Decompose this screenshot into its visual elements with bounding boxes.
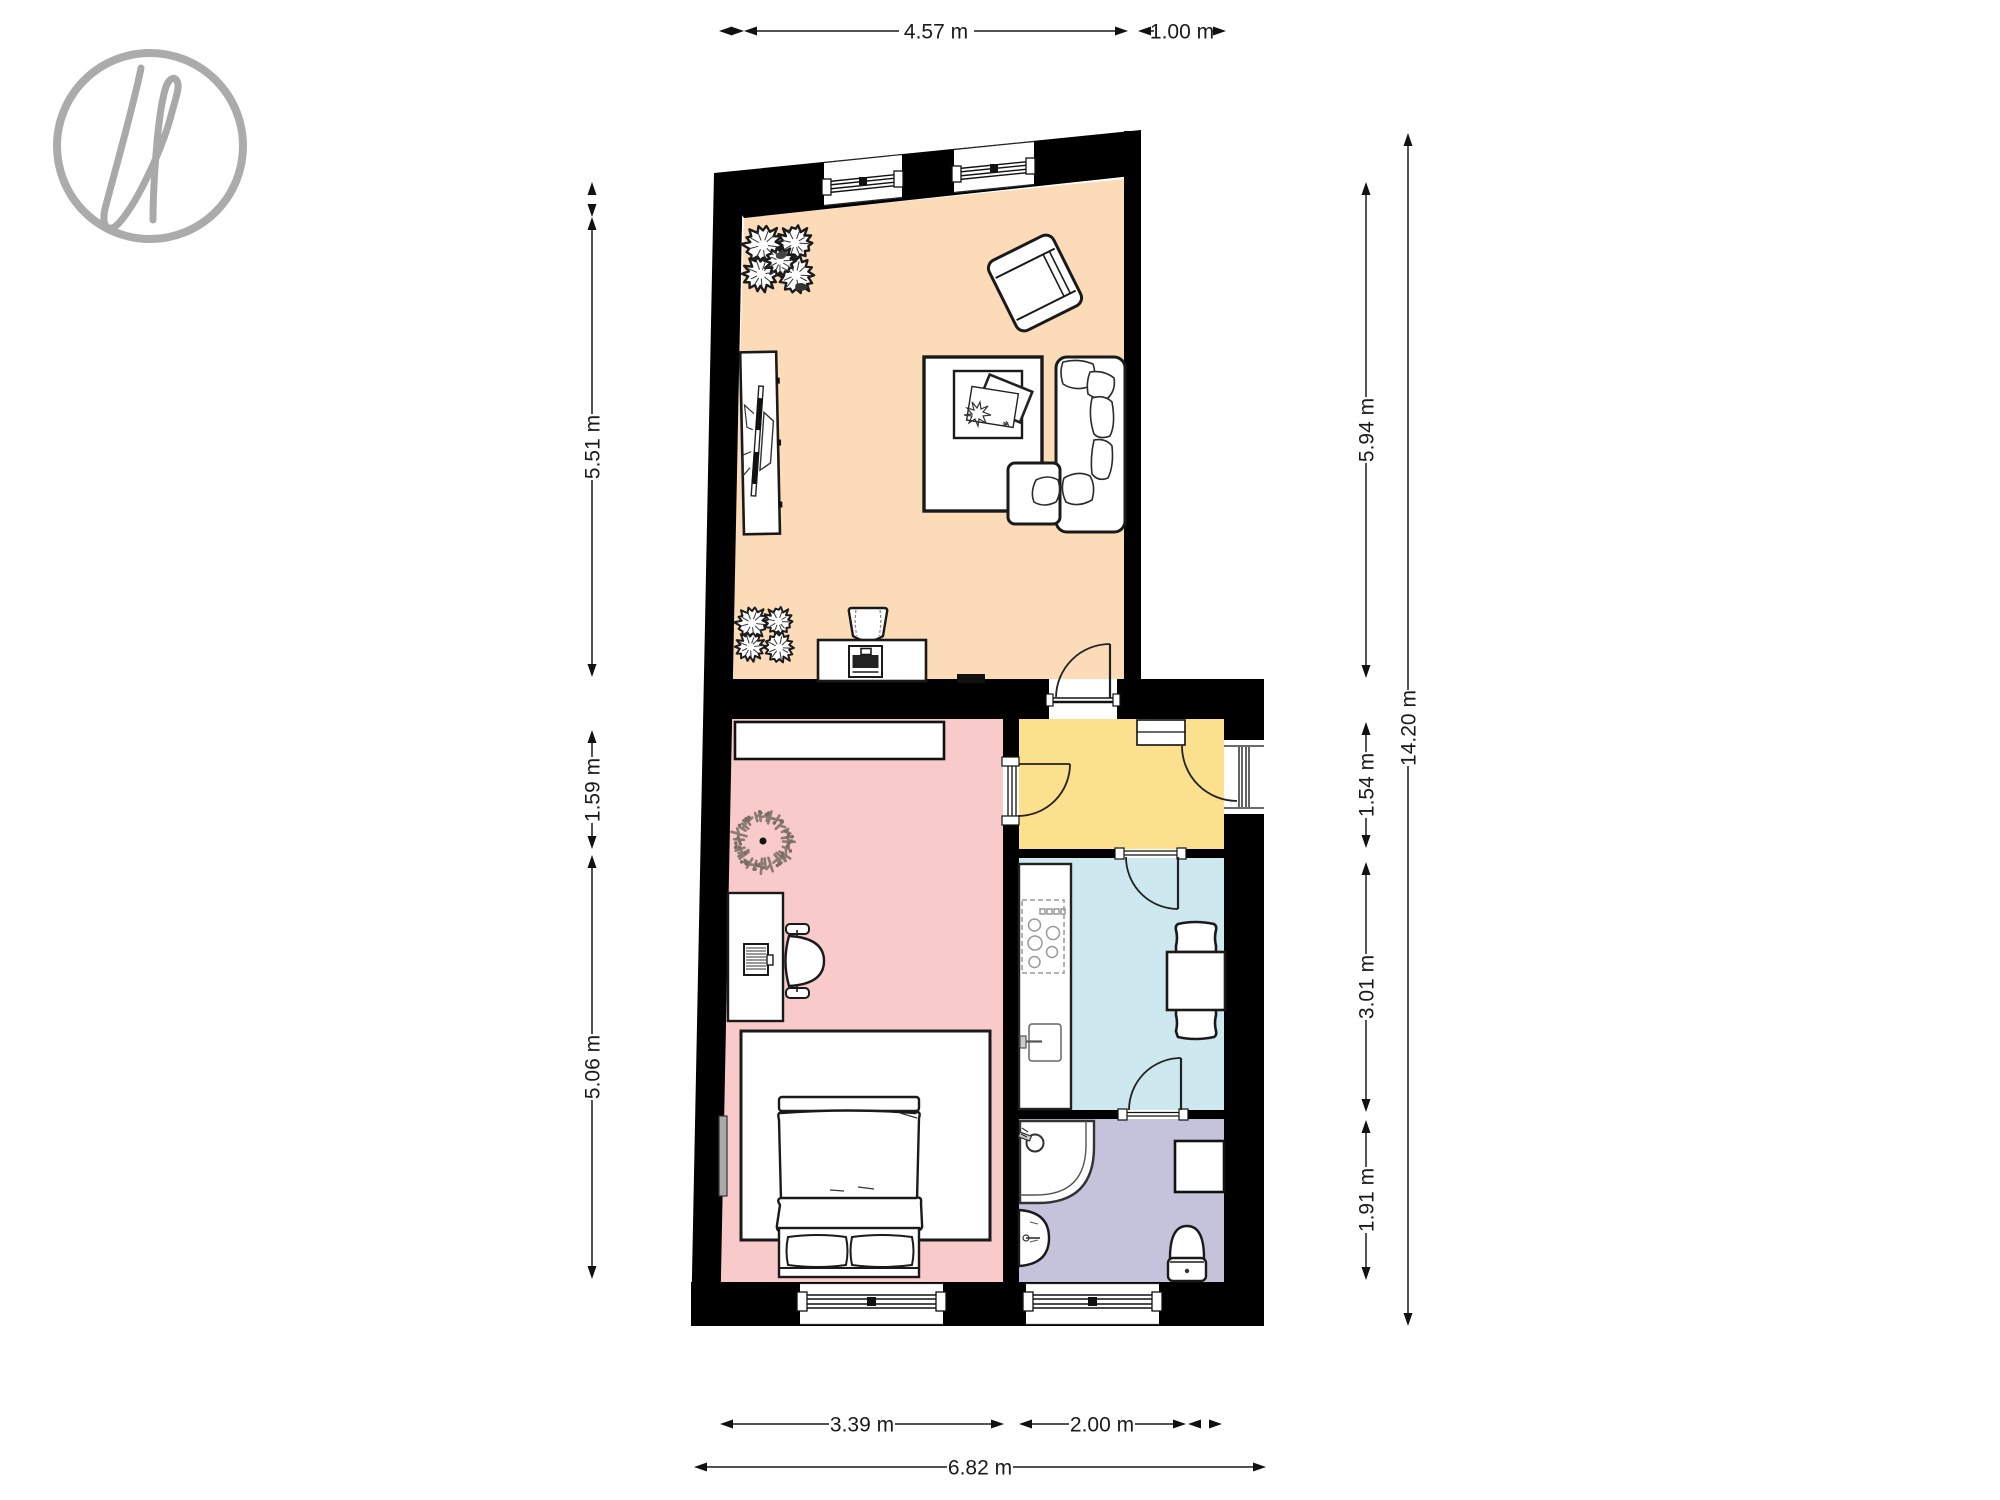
svg-text:2.00 m: 2.00 m: [1070, 1414, 1134, 1437]
svg-text:6.82 m: 6.82 m: [948, 1457, 1012, 1480]
svg-text:1.91 m: 1.91 m: [1356, 1168, 1379, 1232]
svg-text:4.57 m: 4.57 m: [904, 21, 968, 44]
svg-text:5.51 m: 5.51 m: [582, 415, 605, 479]
svg-text:1.54 m: 1.54 m: [1356, 753, 1379, 817]
svg-text:1.00 m: 1.00 m: [1150, 21, 1214, 44]
svg-text:5.06 m: 5.06 m: [582, 1035, 605, 1099]
svg-text:3.39 m: 3.39 m: [830, 1414, 894, 1437]
svg-text:3.01 m: 3.01 m: [1356, 955, 1379, 1019]
svg-text:1.59 m: 1.59 m: [582, 758, 605, 822]
svg-text:14.20 m: 14.20 m: [1398, 690, 1421, 766]
svg-text:5.94 m: 5.94 m: [1356, 398, 1379, 462]
